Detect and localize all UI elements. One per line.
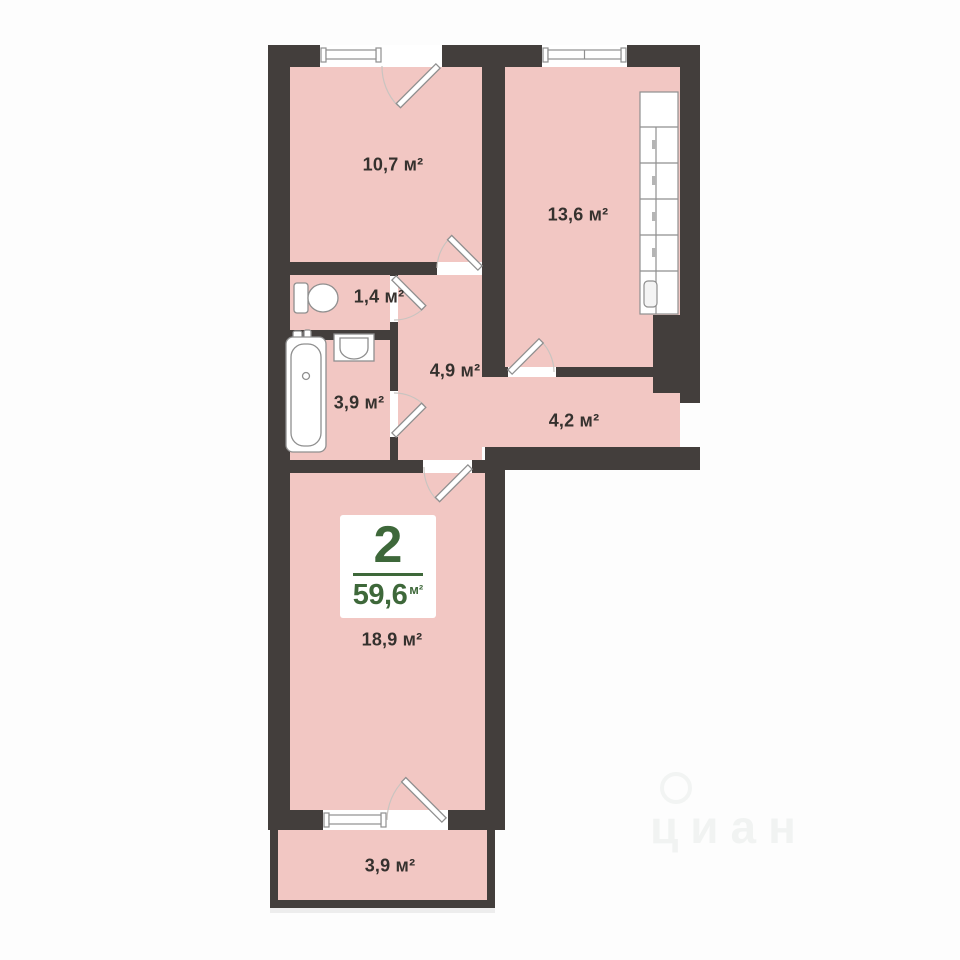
area-label-room2: 18,9 м² (362, 630, 423, 651)
wall-segment-balcony-left (270, 830, 278, 908)
area-label-entry: 4,2 м² (549, 411, 600, 432)
badge-divider (353, 573, 423, 576)
window-opening-room2 (323, 810, 387, 830)
total-area: 59,6 м² (353, 581, 423, 610)
wall-segment-left (268, 45, 290, 830)
window-opening-room1 (320, 45, 382, 67)
door-opening-room1-top (382, 45, 442, 67)
wall-segment-wc-bottom (268, 330, 398, 340)
rooms-count: 2 (374, 523, 403, 567)
total-area-unit: м² (409, 583, 423, 596)
wall-segment-band-outer (485, 447, 700, 470)
total-area-badge: 2 59,6 м² (340, 515, 436, 618)
area-label-kitchen: 13,6 м² (548, 205, 609, 226)
wall-segment-balcony-bottom (270, 900, 495, 908)
door-opening-room1 (437, 262, 482, 275)
watermark: циан (650, 800, 910, 854)
door-opening-kitchen (508, 367, 556, 377)
wall-segment-divider (482, 45, 505, 377)
floor-plan: 10,7 м² 13,6 м² 1,4 м² 4,9 м² 3,9 м² 4,2… (0, 0, 960, 960)
area-label-bathroom: 3,9 м² (334, 393, 385, 414)
area-label-wc: 1,4 м² (354, 287, 405, 308)
balcony-sill (270, 908, 495, 913)
door-opening-balcony (387, 810, 448, 830)
wall-segment-entry-pier (653, 315, 700, 393)
window-opening-kitchen (542, 45, 627, 67)
wall-segment-room2-right (485, 470, 505, 810)
wall-segment-balcony-right (487, 830, 495, 908)
total-area-value: 59,6 (353, 581, 407, 610)
door-opening-room2 (423, 460, 472, 473)
area-label-hall: 4,9 м² (430, 361, 481, 382)
area-label-balcony: 3,9 м² (365, 856, 416, 877)
area-label-room1: 10,7 м² (363, 155, 424, 176)
door-opening-bathroom (390, 391, 398, 437)
